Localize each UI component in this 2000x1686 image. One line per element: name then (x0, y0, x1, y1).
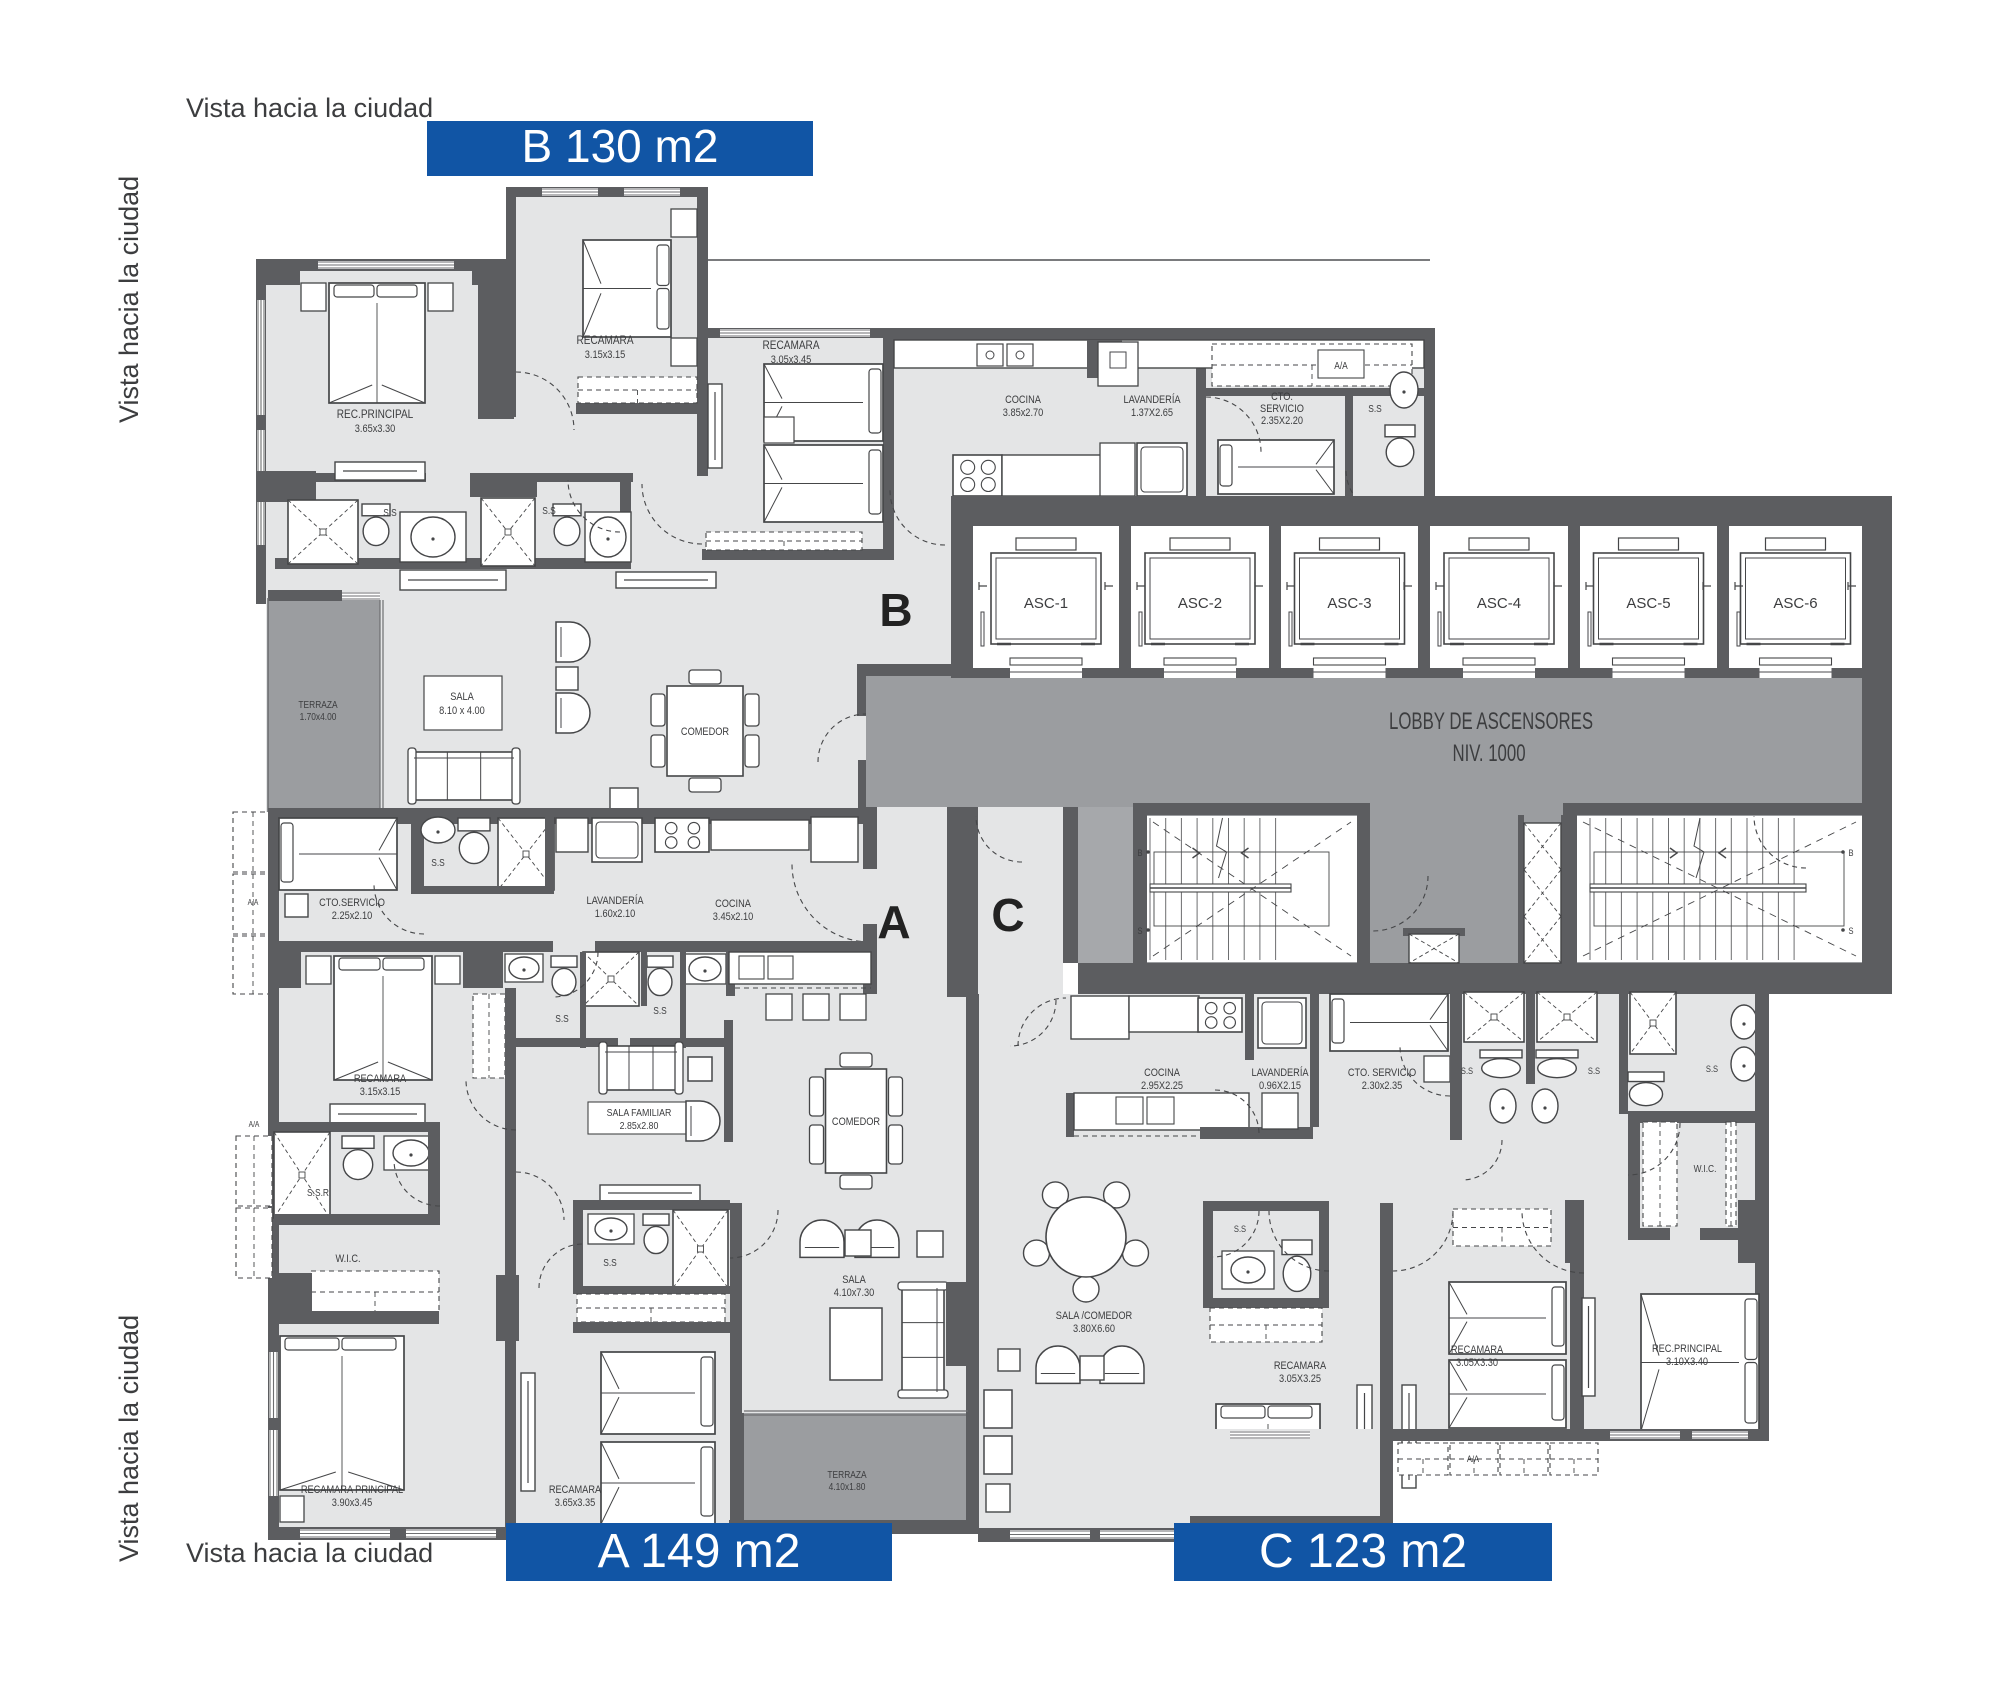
svg-text:RECAMARA: RECAMARA (1274, 1360, 1326, 1372)
svg-text:3.10X3.40: 3.10X3.40 (1666, 1356, 1708, 1368)
svg-text:3.15x3.15: 3.15x3.15 (585, 349, 626, 361)
svg-text:SALA: SALA (450, 691, 474, 703)
svg-text:4.10x7.30: 4.10x7.30 (834, 1287, 875, 1299)
svg-text:B: B (1848, 847, 1853, 858)
svg-text:COMEDOR: COMEDOR (681, 726, 729, 738)
svg-text:1.70x4.00: 1.70x4.00 (300, 711, 337, 722)
svg-text:8.10 x 4.00: 8.10 x 4.00 (439, 705, 485, 717)
svg-text:CTO.SERVICIO: CTO.SERVICIO (319, 897, 385, 909)
svg-text:2.25x2.10: 2.25x2.10 (332, 910, 373, 922)
svg-text:3.05X3.30: 3.05X3.30 (1456, 1357, 1498, 1369)
svg-text:RECAMARA: RECAMARA (762, 339, 820, 352)
svg-text:4.10x1.80: 4.10x1.80 (829, 1481, 866, 1492)
svg-text:3.05x3.45: 3.05x3.45 (771, 354, 812, 366)
svg-text:S.S: S.S (542, 505, 556, 516)
svg-text:TERRAZA: TERRAZA (827, 1469, 867, 1480)
svg-text:C: C (991, 889, 1024, 941)
svg-text:REC.PRINCIPAL: REC.PRINCIPAL (1652, 1343, 1722, 1355)
svg-text:SERVICIO: SERVICIO (1260, 403, 1304, 415)
svg-text:S.S: S.S (1461, 1065, 1474, 1076)
svg-text:A/A: A/A (1334, 360, 1348, 371)
svg-text:W.I.C.: W.I.C. (1694, 1163, 1717, 1174)
svg-text:CTO.: CTO. (1271, 391, 1293, 403)
svg-text:S.S: S.S (1234, 1223, 1247, 1234)
svg-text:C 123 m2: C 123 m2 (1259, 1525, 1467, 1578)
svg-text:B: B (879, 584, 912, 636)
svg-text:A/A: A/A (248, 897, 259, 907)
svg-text:3.85x2.70: 3.85x2.70 (1003, 407, 1044, 419)
svg-text:3.15x3.15: 3.15x3.15 (360, 1086, 401, 1098)
svg-text:Vista hacia la ciudad: Vista hacia la ciudad (186, 1538, 433, 1568)
svg-text:S: S (1137, 925, 1142, 936)
svg-text:2.30x2.35: 2.30x2.35 (1362, 1080, 1403, 1092)
svg-text:COMEDOR: COMEDOR (832, 1116, 880, 1128)
svg-text:Vista hacia la ciudad: Vista hacia la ciudad (114, 1315, 144, 1562)
svg-text:A/A: A/A (249, 1119, 260, 1129)
svg-text:S: S (1848, 925, 1853, 936)
svg-text:S.S: S.S (1368, 403, 1382, 414)
svg-text:3.05X3.25: 3.05X3.25 (1279, 1373, 1321, 1385)
svg-text:3.65x3.30: 3.65x3.30 (355, 423, 396, 435)
svg-text:1.60x2.10: 1.60x2.10 (595, 908, 636, 920)
svg-text:3.65x3.35: 3.65x3.35 (555, 1497, 596, 1509)
svg-text:B: B (1137, 847, 1142, 858)
svg-text:A: A (877, 896, 910, 948)
svg-text:LAVANDERÍA: LAVANDERÍA (1123, 392, 1180, 406)
svg-text:RECAMARA PRINCIPAL: RECAMARA PRINCIPAL (301, 1484, 404, 1496)
svg-text:ASC-2: ASC-2 (1178, 595, 1222, 612)
svg-text:S.S: S.S (1588, 1065, 1601, 1076)
svg-text:LAVANDERÍA: LAVANDERÍA (586, 893, 643, 907)
svg-text:A 149 m2: A 149 m2 (598, 1525, 801, 1578)
svg-text:COCINA: COCINA (1005, 394, 1041, 406)
svg-text:NIV. 1000: NIV. 1000 (1452, 740, 1525, 767)
svg-text:S.S: S.S (431, 857, 445, 868)
svg-text:S.S: S.S (653, 1005, 667, 1016)
svg-text:S.S: S.S (555, 1013, 569, 1024)
svg-text:B 130 m2: B 130 m2 (522, 120, 719, 172)
svg-text:RECAMARA: RECAMARA (549, 1484, 601, 1496)
svg-text:SALA FAMILIAR: SALA FAMILIAR (607, 1107, 672, 1119)
svg-text:ASC-3: ASC-3 (1327, 595, 1371, 612)
svg-text:RECAMARA: RECAMARA (576, 334, 634, 347)
svg-text:Vista hacia la ciudad: Vista hacia la ciudad (186, 93, 433, 123)
svg-text:1.37X2.65: 1.37X2.65 (1131, 407, 1173, 419)
svg-text:ASC-1: ASC-1 (1024, 595, 1068, 612)
svg-text:A/A: A/A (1467, 1453, 1480, 1464)
svg-text:3.45x2.10: 3.45x2.10 (713, 911, 754, 923)
svg-text:0.96X2.15: 0.96X2.15 (1259, 1080, 1301, 1092)
svg-text:3.90x3.45: 3.90x3.45 (332, 1497, 373, 1509)
svg-text:LOBBY DE ASCENSORES: LOBBY DE ASCENSORES (1389, 708, 1593, 735)
svg-text:S.S: S.S (603, 1257, 617, 1268)
svg-text:RECAMARA: RECAMARA (1451, 1344, 1503, 1356)
svg-text:TERRAZA: TERRAZA (298, 699, 338, 710)
svg-text:W.I.C.: W.I.C. (335, 1253, 360, 1265)
svg-text:S.S: S.S (383, 507, 397, 518)
svg-text:REC.PRINCIPAL: REC.PRINCIPAL (337, 408, 414, 421)
svg-text:ASC-6: ASC-6 (1773, 595, 1817, 612)
svg-text:3.80X6.60: 3.80X6.60 (1073, 1323, 1115, 1335)
svg-text:2.95X2.25: 2.95X2.25 (1141, 1080, 1183, 1092)
svg-text:S.S.R: S.S.R (307, 1187, 329, 1198)
svg-text:SALA: SALA (842, 1274, 866, 1286)
svg-text:SALA /COMEDOR: SALA /COMEDOR (1056, 1310, 1132, 1322)
svg-text:COCINA: COCINA (1144, 1067, 1180, 1079)
svg-text:COCINA: COCINA (715, 898, 751, 910)
svg-text:ASC-5: ASC-5 (1626, 595, 1670, 612)
svg-text:2.85x2.80: 2.85x2.80 (620, 1120, 659, 1132)
svg-text:RECAMARA: RECAMARA (354, 1073, 406, 1085)
svg-text:S.S: S.S (1706, 1063, 1719, 1074)
svg-text:ASC-4: ASC-4 (1477, 595, 1521, 612)
svg-text:2.35X2.20: 2.35X2.20 (1261, 415, 1303, 427)
svg-text:LAVANDERÍA: LAVANDERÍA (1251, 1065, 1308, 1079)
svg-text:Vista hacia la ciudad: Vista hacia la ciudad (114, 176, 144, 423)
